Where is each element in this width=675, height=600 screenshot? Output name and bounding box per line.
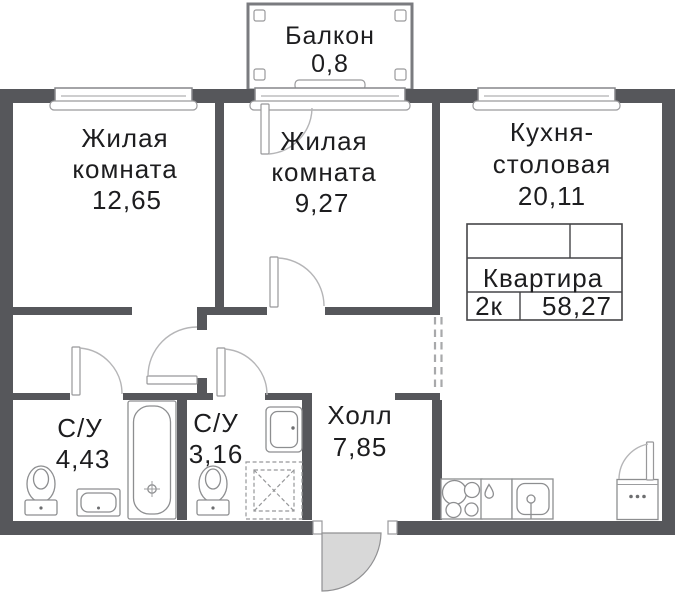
balcony-post xyxy=(254,69,265,80)
wall-segment xyxy=(190,89,257,103)
door-leaf xyxy=(261,104,269,154)
fridge-outline xyxy=(617,480,658,520)
fridge-unit xyxy=(617,442,658,520)
door-leaf xyxy=(270,257,278,307)
balcony-post xyxy=(254,10,265,21)
wall-kitchen-divider xyxy=(432,103,440,315)
door-bathroom2 xyxy=(217,348,267,396)
door-arc xyxy=(225,349,267,395)
label-bathroom1-area: 4,43 xyxy=(56,444,111,474)
wall-stub-kitchen xyxy=(395,393,440,400)
wall-segment xyxy=(10,307,132,315)
toilet-button xyxy=(211,506,214,509)
wall-segment xyxy=(403,89,480,103)
stove-burner xyxy=(465,483,480,498)
wall-segment xyxy=(325,307,440,315)
stove-burner xyxy=(446,503,461,518)
fridge-door-leaf xyxy=(647,442,654,480)
label-bathroom2-name: С/У xyxy=(193,408,239,438)
door-living1 xyxy=(147,327,197,384)
wall-bath2-hall xyxy=(302,400,312,520)
info-table: Квартира 2к 58,27 xyxy=(467,224,622,321)
entrance-door xyxy=(313,521,397,591)
stove-burner xyxy=(443,481,467,505)
windows xyxy=(50,88,620,110)
wall-bath1-top xyxy=(13,393,70,400)
stove xyxy=(441,479,482,519)
label-bathroom1-name: С/У xyxy=(57,413,103,443)
entrance-jamb xyxy=(313,521,322,534)
shower-tray xyxy=(246,462,302,519)
apartment-title: Квартира xyxy=(483,263,603,293)
door-leaf xyxy=(147,376,197,384)
kitchen-sink xyxy=(512,479,553,519)
label-living1-area: 12,65 xyxy=(92,185,162,215)
wall-bottom-right xyxy=(397,521,675,535)
toilet-bowl-inner xyxy=(206,469,221,489)
sink-drain xyxy=(97,507,100,510)
sink xyxy=(77,489,120,516)
faucet-head xyxy=(527,495,535,503)
label-hall-area: 7,85 xyxy=(333,432,388,462)
balcony-post xyxy=(395,69,406,80)
door-arc xyxy=(80,348,122,394)
balcony-post xyxy=(395,10,406,21)
label-kitchen-area: 20,11 xyxy=(518,181,586,211)
label-living2-name2: комната xyxy=(271,157,376,187)
wall-bottom-left xyxy=(0,521,313,535)
label-living1-name1: Жилая xyxy=(81,123,168,153)
sink-drain xyxy=(291,426,294,429)
entrance-jamb xyxy=(388,521,397,534)
kitchen-fixtures xyxy=(441,442,658,520)
label-living1-name2: комната xyxy=(72,154,177,184)
toilet-bowl-inner xyxy=(34,469,49,489)
label-living2-area: 9,27 xyxy=(295,188,350,218)
toilet xyxy=(197,466,229,515)
vent-dot xyxy=(636,495,640,499)
apartment-total-area: 58,27 xyxy=(542,291,612,321)
window-sill xyxy=(473,101,620,110)
label-hall-name: Холл xyxy=(327,400,392,430)
label-kitchen-name1: Кухня- xyxy=(510,117,594,147)
label-bathroom2-area: 3,16 xyxy=(189,439,244,469)
toilet-button xyxy=(39,506,42,509)
wall-bath-top xyxy=(123,393,213,400)
cabinet-outline xyxy=(481,479,512,519)
window-sill xyxy=(250,101,410,110)
label-kitchen-name2: столовая xyxy=(493,149,612,179)
label-balcony-name: Балкон xyxy=(285,22,375,50)
entrance-door-swing xyxy=(322,533,381,591)
kitchen-passage xyxy=(435,317,442,389)
label-living2-name1: Жилая xyxy=(280,126,367,156)
vent-dot xyxy=(642,495,646,499)
label-balcony-area: 0,8 xyxy=(311,50,349,78)
wall-segment xyxy=(197,307,267,315)
wall-stub xyxy=(197,315,207,330)
wall-sink xyxy=(266,407,302,452)
wall-bath2-top xyxy=(265,393,312,400)
bathtub-basin xyxy=(134,406,171,514)
wall-right xyxy=(662,89,675,535)
door-arc xyxy=(148,327,197,376)
bathtub xyxy=(128,401,176,519)
wall-living-divider xyxy=(215,103,224,312)
toilet xyxy=(25,466,57,515)
wall-bath-divider xyxy=(177,400,187,520)
floor-plan: Квартира 2к 58,27 Балкон 0,8 Жилая комна… xyxy=(0,0,675,600)
fridge-door-arc xyxy=(619,444,648,479)
door-leaf xyxy=(72,347,80,395)
kitchen-cabinet xyxy=(481,479,512,519)
door-bathroom1 xyxy=(72,347,122,395)
window-sill xyxy=(50,101,197,110)
door-arc xyxy=(278,258,324,306)
floor-plan-drawing: Квартира 2к 58,27 Балкон 0,8 Жилая комна… xyxy=(0,0,675,600)
apartment-rooms: 2к xyxy=(475,291,503,321)
stove-burner xyxy=(465,503,478,516)
door-living2 xyxy=(270,257,324,307)
door-leaf xyxy=(217,348,225,396)
vent-dot xyxy=(629,495,633,499)
